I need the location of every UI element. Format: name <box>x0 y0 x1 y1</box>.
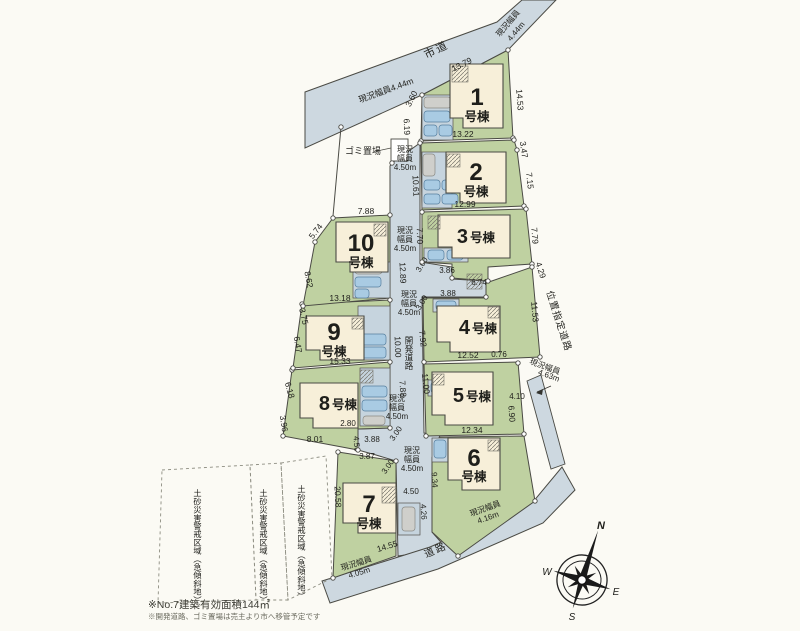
site-plan-page: 市道 現況幅員4.44m 現況幅員 4.44m 道路 位置指定道路 現況幅員 4… <box>0 0 800 631</box>
car-icon <box>362 386 387 397</box>
dim: 15.33 <box>329 356 351 366</box>
lot-4-number: 4 <box>459 317 471 339</box>
compass: N W E S <box>542 520 626 623</box>
dim: 9.34 <box>429 472 439 489</box>
lot-5-suffix: 号棟 <box>466 389 492 404</box>
width-stack-line: 現況 <box>397 226 413 235</box>
lot-2-number: 2 <box>469 159 482 186</box>
car-icon <box>355 289 369 298</box>
dim: 7.92 <box>417 330 429 348</box>
dev-road-label: 開発道路 <box>404 336 414 371</box>
width-stack-line: 幅員 <box>401 298 417 308</box>
width-stack-line: 現況 <box>404 446 420 455</box>
width-stack-line: 4.50m <box>394 163 417 172</box>
car-icon <box>424 125 437 136</box>
west-boundary-line <box>333 127 341 216</box>
dim: 6.90 <box>506 405 517 422</box>
car-icon <box>439 125 452 136</box>
dim: 6.19 <box>402 118 413 135</box>
lot-2-suffix: 号棟 <box>463 184 489 199</box>
hazard-zone-1 <box>158 465 256 603</box>
car-icon <box>434 440 446 458</box>
dim: 7.79 <box>529 227 540 245</box>
dim: 3.96 <box>278 415 291 433</box>
lot-10-suffix: 号棟 <box>348 255 374 270</box>
entrance-steps-icon <box>352 318 363 329</box>
hazard-labels: 土砂災害警戒区域（急傾斜地） 土砂災害警戒区域（急傾斜地） 土砂災害警戒区域（急… <box>193 484 306 604</box>
lot-1-number: 1 <box>470 84 483 111</box>
lot-8-number: 8 <box>319 393 330 415</box>
lot-6: 6 号棟 <box>432 436 535 556</box>
site-plan-svg: 市道 現況幅員4.44m 現況幅員 4.44m 道路 位置指定道路 現況幅員 4… <box>0 0 800 631</box>
dim: 7.70 <box>415 227 426 244</box>
dim: 13.18 <box>329 293 351 303</box>
entrance-steps-icon <box>360 370 373 383</box>
hazard-label-3: 土砂災害警戒区域（急傾斜地） <box>297 484 306 600</box>
dim: 14.53 <box>514 89 525 111</box>
hazard-label-1: 土砂災害警戒区域（急傾斜地） <box>193 488 202 604</box>
dim: 3.88 <box>440 289 456 298</box>
dim: 7.88 <box>358 206 375 216</box>
car-icon <box>424 180 440 190</box>
entrance-steps-icon <box>382 487 396 503</box>
car-icon <box>424 97 451 108</box>
lot-3-number: 3 <box>457 226 468 248</box>
car-icon <box>355 277 381 287</box>
compass-w-label: W <box>542 567 553 578</box>
dim: 3.88 <box>364 435 380 444</box>
dim: 3.87 <box>359 452 375 461</box>
lot-6-number: 6 <box>467 445 480 472</box>
lot-3-suffix: 号棟 <box>470 230 496 245</box>
dim: 0.76 <box>491 350 507 359</box>
width-stack-line: 幅員 <box>397 234 413 244</box>
hazard-zone-3 <box>281 456 332 600</box>
entrance-steps-icon <box>488 440 499 451</box>
dim: 3.86 <box>439 266 455 275</box>
compass-e-label: E <box>613 587 620 598</box>
dim: 11.53 <box>529 301 541 323</box>
dim: 8.62 <box>302 270 315 288</box>
width-stack-line: 4.50m <box>394 244 417 253</box>
dim: 2.80 <box>340 419 356 428</box>
dim: 8.01 <box>307 434 324 444</box>
width-stack-line: 4.50m <box>401 464 424 473</box>
compass-s-label: S <box>569 612 576 623</box>
car-icon <box>363 416 385 425</box>
hazard-zone-2 <box>250 463 288 600</box>
dim: 7.15 <box>524 172 536 190</box>
hazard-label-2: 土砂災害警戒区域（急傾斜地） <box>259 488 268 604</box>
lot-7-suffix: 号棟 <box>356 516 382 531</box>
dim: 10.00 <box>393 336 404 358</box>
dim: 4.26 <box>418 504 428 521</box>
width-stack-line: 現況 <box>389 394 405 403</box>
entrance-steps-icon <box>374 224 386 236</box>
dim: 3.47 <box>518 141 530 159</box>
lot-4-suffix: 号棟 <box>472 321 498 336</box>
hazard-zones <box>158 456 332 603</box>
dim: 10.61 <box>410 175 421 197</box>
width-stack-line: 4.50m <box>398 308 421 317</box>
dim: 12.34 <box>461 425 483 435</box>
width-stack-line: 幅員 <box>404 454 420 464</box>
car-icon <box>428 250 444 260</box>
dim: 6.47 <box>292 336 305 354</box>
width-stack-line: 現況 <box>397 145 413 154</box>
dim: 12.52 <box>457 350 479 360</box>
entrance-steps-icon <box>433 374 444 385</box>
car-icon <box>424 111 450 122</box>
entrance-steps-icon <box>447 154 460 167</box>
width-stack-line: 現況 <box>401 290 417 299</box>
lot-10-number: 10 <box>348 230 375 257</box>
car-icon <box>423 154 435 176</box>
designated-road-label: 位置指定道路 <box>543 289 574 353</box>
lot-9-number: 9 <box>327 319 340 346</box>
note-line-1: ※No.7建築有効面積144㎡ <box>148 598 270 611</box>
width-stack-line: 幅員 <box>397 153 413 163</box>
dim: 12.99 <box>454 199 476 209</box>
lot-5-number: 5 <box>453 385 464 407</box>
notes: ※No.7建築有効面積144㎡ ※開発道路、ゴミ置場は売主より市へ移管予定です <box>148 598 320 621</box>
dim: 4.29 <box>534 261 549 280</box>
compass-n-label: N <box>597 520 606 532</box>
car-icon <box>402 507 415 531</box>
entrance-steps-icon <box>488 307 499 318</box>
lot-6-suffix: 号棟 <box>461 469 487 484</box>
dim: 4.10 <box>509 392 525 401</box>
lot-8-suffix: 号棟 <box>332 397 358 412</box>
width-stack-line: 4.50m <box>386 412 409 421</box>
lot-1-suffix: 号棟 <box>464 109 490 124</box>
lot-7-number: 7 <box>362 491 375 518</box>
dim: 6.74 <box>471 278 487 287</box>
dim: 4.50 <box>403 487 419 496</box>
dim: 20.58 <box>332 486 343 508</box>
entrance-steps-icon <box>428 216 440 229</box>
garbage-label: ゴミ置場 <box>345 145 381 156</box>
dim: 12.89 <box>397 262 408 284</box>
dim: 13.22 <box>452 129 474 139</box>
car-icon <box>362 400 387 411</box>
note-line-2: ※開発道路、ゴミ置場は売主より市へ移管予定です <box>148 611 320 621</box>
car-icon <box>424 194 440 204</box>
width-stack-line: 幅員 <box>389 402 405 412</box>
